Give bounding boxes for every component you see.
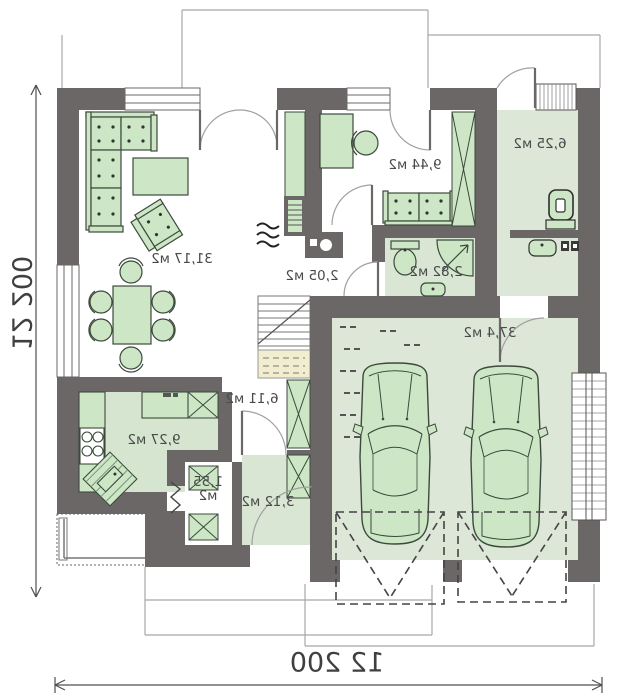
pantry-cabinet-bottom: [189, 514, 218, 540]
bathroom-sink: [421, 283, 445, 296]
desk: [320, 114, 353, 168]
floor-plan-drawing: [0, 0, 630, 700]
room-label-bathroom: 2,82 м2: [409, 265, 462, 279]
living-window-top: [125, 88, 200, 110]
office-window-top: [347, 88, 390, 110]
car-2: [464, 366, 548, 547]
chimney-flue: [305, 232, 343, 258]
room-label-office: 9,44 м2: [388, 158, 441, 172]
stove: [80, 428, 104, 464]
room-label-kitchen: 9,27 м2: [127, 433, 180, 447]
dimension-bottom: [55, 677, 602, 693]
driveway-outline: [305, 584, 594, 646]
stair-landing: [258, 350, 310, 378]
vestibule-wardrobe: [287, 455, 310, 498]
pantry-area-line1: 1,55: [193, 475, 223, 489]
kitchen-cabinet: [188, 392, 218, 418]
garage-window-right: [572, 373, 606, 520]
office-sofa: [383, 191, 455, 225]
living-window-left: [57, 265, 79, 377]
staircase: [258, 296, 310, 378]
hall-wardrobe: [287, 380, 310, 448]
room-label-garage: 37,4 м2: [463, 326, 516, 340]
dimension-label-left: 12 200: [6, 256, 37, 350]
pantry-area-line2: м2: [193, 489, 223, 503]
entry-door-arc: [497, 68, 535, 88]
wc-toilet: [546, 190, 575, 229]
dining-table: [113, 286, 151, 344]
room-label-vestibule: 3,12 м2: [241, 495, 294, 509]
wc-sink: [529, 240, 556, 256]
entry-vent-window: [536, 84, 576, 110]
room-label-living: 31,17 м2: [151, 252, 213, 266]
wc-half-wall: [510, 230, 578, 238]
coffee-table: [133, 158, 188, 195]
dimension-label-bottom: 12 200: [290, 648, 384, 679]
office-wardrobe: [452, 112, 475, 226]
floor-plan: 31,17 м2 9,44 м2 6,25 м2 2,05 м2 2,82 м2…: [0, 0, 630, 700]
entry-porch-outline: [145, 567, 432, 635]
car-1: [353, 363, 437, 544]
room-label-pantry: 1,55 м2: [193, 475, 223, 503]
room-label-fireplace-nook: 2,05 м2: [285, 269, 338, 283]
room-label-hall: 6,11 м2: [225, 392, 278, 406]
room-label-entry-hall: 6,25 м2: [513, 137, 566, 151]
